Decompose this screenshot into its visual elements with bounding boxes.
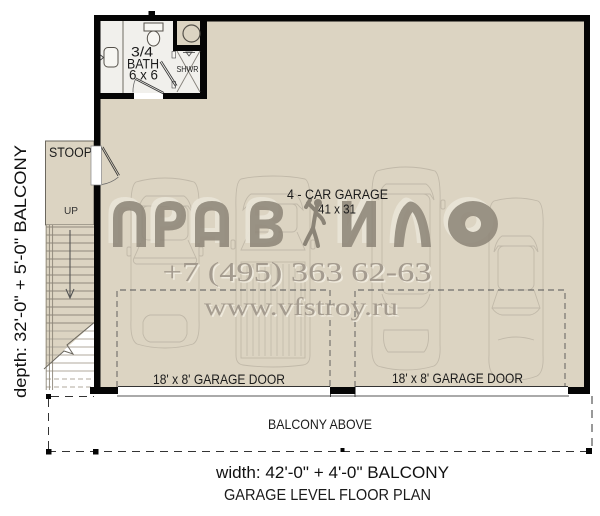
svg-text:18' x 8' GARAGE DOOR: 18' x 8' GARAGE DOOR (153, 371, 285, 387)
svg-text:STOOP: STOOP (49, 145, 92, 160)
svg-text:UP: UP (64, 205, 78, 217)
svg-text:BALCONY ABOVE: BALCONY ABOVE (268, 416, 372, 432)
svg-text:GARAGE LEVEL FLOOR PLAN: GARAGE LEVEL FLOOR PLAN (224, 487, 431, 504)
svg-text:SHWR: SHWR (177, 64, 199, 74)
svg-text:18' x 8' GARAGE DOOR: 18' x 8' GARAGE DOOR (392, 370, 523, 386)
svg-text:6 x 6: 6 x 6 (129, 68, 158, 83)
svg-text:41 x 31: 41 x 31 (318, 202, 356, 217)
svg-text:width: 42'-0" + 4'-0" BALCONY: width: 42'-0" + 4'-0" BALCONY (215, 463, 449, 482)
svg-text:depth: 32'-0" + 5'-0" BALCONY: depth: 32'-0" + 5'-0" BALCONY (11, 145, 30, 398)
svg-text:www.vfstroy.ru: www.vfstroy.ru (204, 292, 398, 321)
svg-text:4 - CAR GARAGE: 4 - CAR GARAGE (287, 187, 388, 202)
svg-text:+7 (495) 363 62-63: +7 (495) 363 62-63 (163, 256, 432, 287)
